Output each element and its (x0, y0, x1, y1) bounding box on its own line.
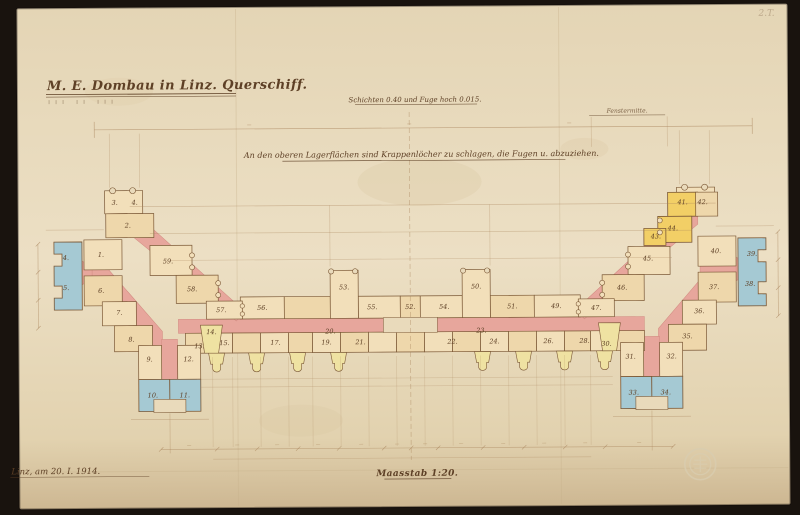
stone-label: 5. (63, 284, 69, 292)
stone-label: 26. (542, 337, 553, 345)
embossed-stamp (685, 449, 716, 480)
stone-label: 9. (146, 356, 152, 364)
course-stone (284, 296, 330, 318)
stone-label: 20. (324, 327, 335, 335)
stone-label: 58. (187, 285, 197, 293)
stone-label: 49. (550, 302, 561, 310)
stone-label: 8. (128, 336, 134, 344)
stone-label: 46. (616, 284, 627, 292)
stone-label: 15. (219, 339, 229, 347)
stone-label: 7. (116, 309, 122, 317)
stone-label: 17. (270, 339, 280, 347)
stone-label: 45. (642, 254, 653, 262)
stone-label: 55. (367, 303, 377, 311)
stone-label: 33. (629, 389, 639, 397)
stone-label: 36. (694, 307, 704, 315)
stone-label: 42. (696, 198, 707, 206)
stone-label: 39. (747, 250, 757, 258)
stone-label: 22. (446, 338, 457, 346)
blue-end-stone-left (54, 242, 82, 310)
stone-label: 40. (710, 247, 721, 255)
scale-label: Maasstab 1:20. (375, 469, 458, 480)
stone-label: 44. (667, 224, 678, 232)
stone-label: 10. (148, 391, 158, 399)
date-label: Linz, am 20. I. 1914. (10, 467, 100, 478)
course-stone (368, 332, 396, 352)
stone-label: 54. (439, 303, 449, 311)
stone-label: 52. (405, 303, 415, 311)
stone-label: 13. (194, 342, 204, 350)
note-axis: Fenstermitte. (606, 107, 648, 114)
stone-label: 53. (339, 283, 349, 291)
corner-pencil-mark: 2.T. (757, 9, 774, 19)
stone-label: 1. (98, 251, 104, 259)
stone-label: 37. (709, 283, 719, 291)
stone-label: 12. (183, 355, 193, 363)
stone-label: 34. (661, 388, 671, 396)
stone-label: 32. (666, 352, 676, 360)
stone-label: 56. (257, 304, 267, 312)
stone-label: 31. (625, 353, 635, 361)
stone-label: 4. (131, 199, 138, 207)
stone-label: 51. (507, 302, 517, 310)
course-stone (232, 333, 260, 353)
course-stone (508, 331, 536, 351)
stone-label: 30. (601, 340, 611, 348)
stone-label: 2. (124, 222, 131, 230)
stone-label: 28. (578, 337, 589, 345)
note-courses: Schichten 0.40 und Fuge hoch 0.015. (349, 95, 482, 104)
stone-label: 21. (354, 338, 365, 346)
stone-label: 19. (321, 338, 331, 346)
stone-label: 50. (471, 283, 481, 291)
stone-label: 24. (488, 337, 499, 345)
scanned-drawing: 3.4.2.59.58.57.1.6.4.5.7.8.9.12.10.11.13… (0, 0, 800, 515)
drawing-title: M. E. Dombau in Linz. Querschiff. (46, 78, 308, 95)
course-stone (396, 332, 424, 352)
stone-label: 35. (682, 332, 692, 340)
stone-label: 23. (475, 326, 486, 334)
stone-label: 59. (163, 257, 173, 265)
stone-label: 6. (98, 287, 104, 295)
stone-label: 3. (112, 199, 118, 207)
stone-label: 57. (216, 306, 226, 314)
stone-label: 4. (62, 254, 69, 262)
course-stone (288, 333, 312, 353)
stone-label: 41. (676, 198, 687, 206)
stone-label: 43. (650, 232, 661, 240)
stone-label: 11. (180, 391, 190, 399)
stone-label: 14. (206, 328, 216, 336)
course-stone (358, 296, 400, 318)
drawing-canvas: 3.4.2.59.58.57.1.6.4.5.7.8.9.12.10.11.13… (0, 0, 800, 515)
stone-label: 38. (745, 280, 755, 288)
blue-end-stone-right (738, 238, 766, 306)
stone-label: 47. (590, 304, 601, 312)
